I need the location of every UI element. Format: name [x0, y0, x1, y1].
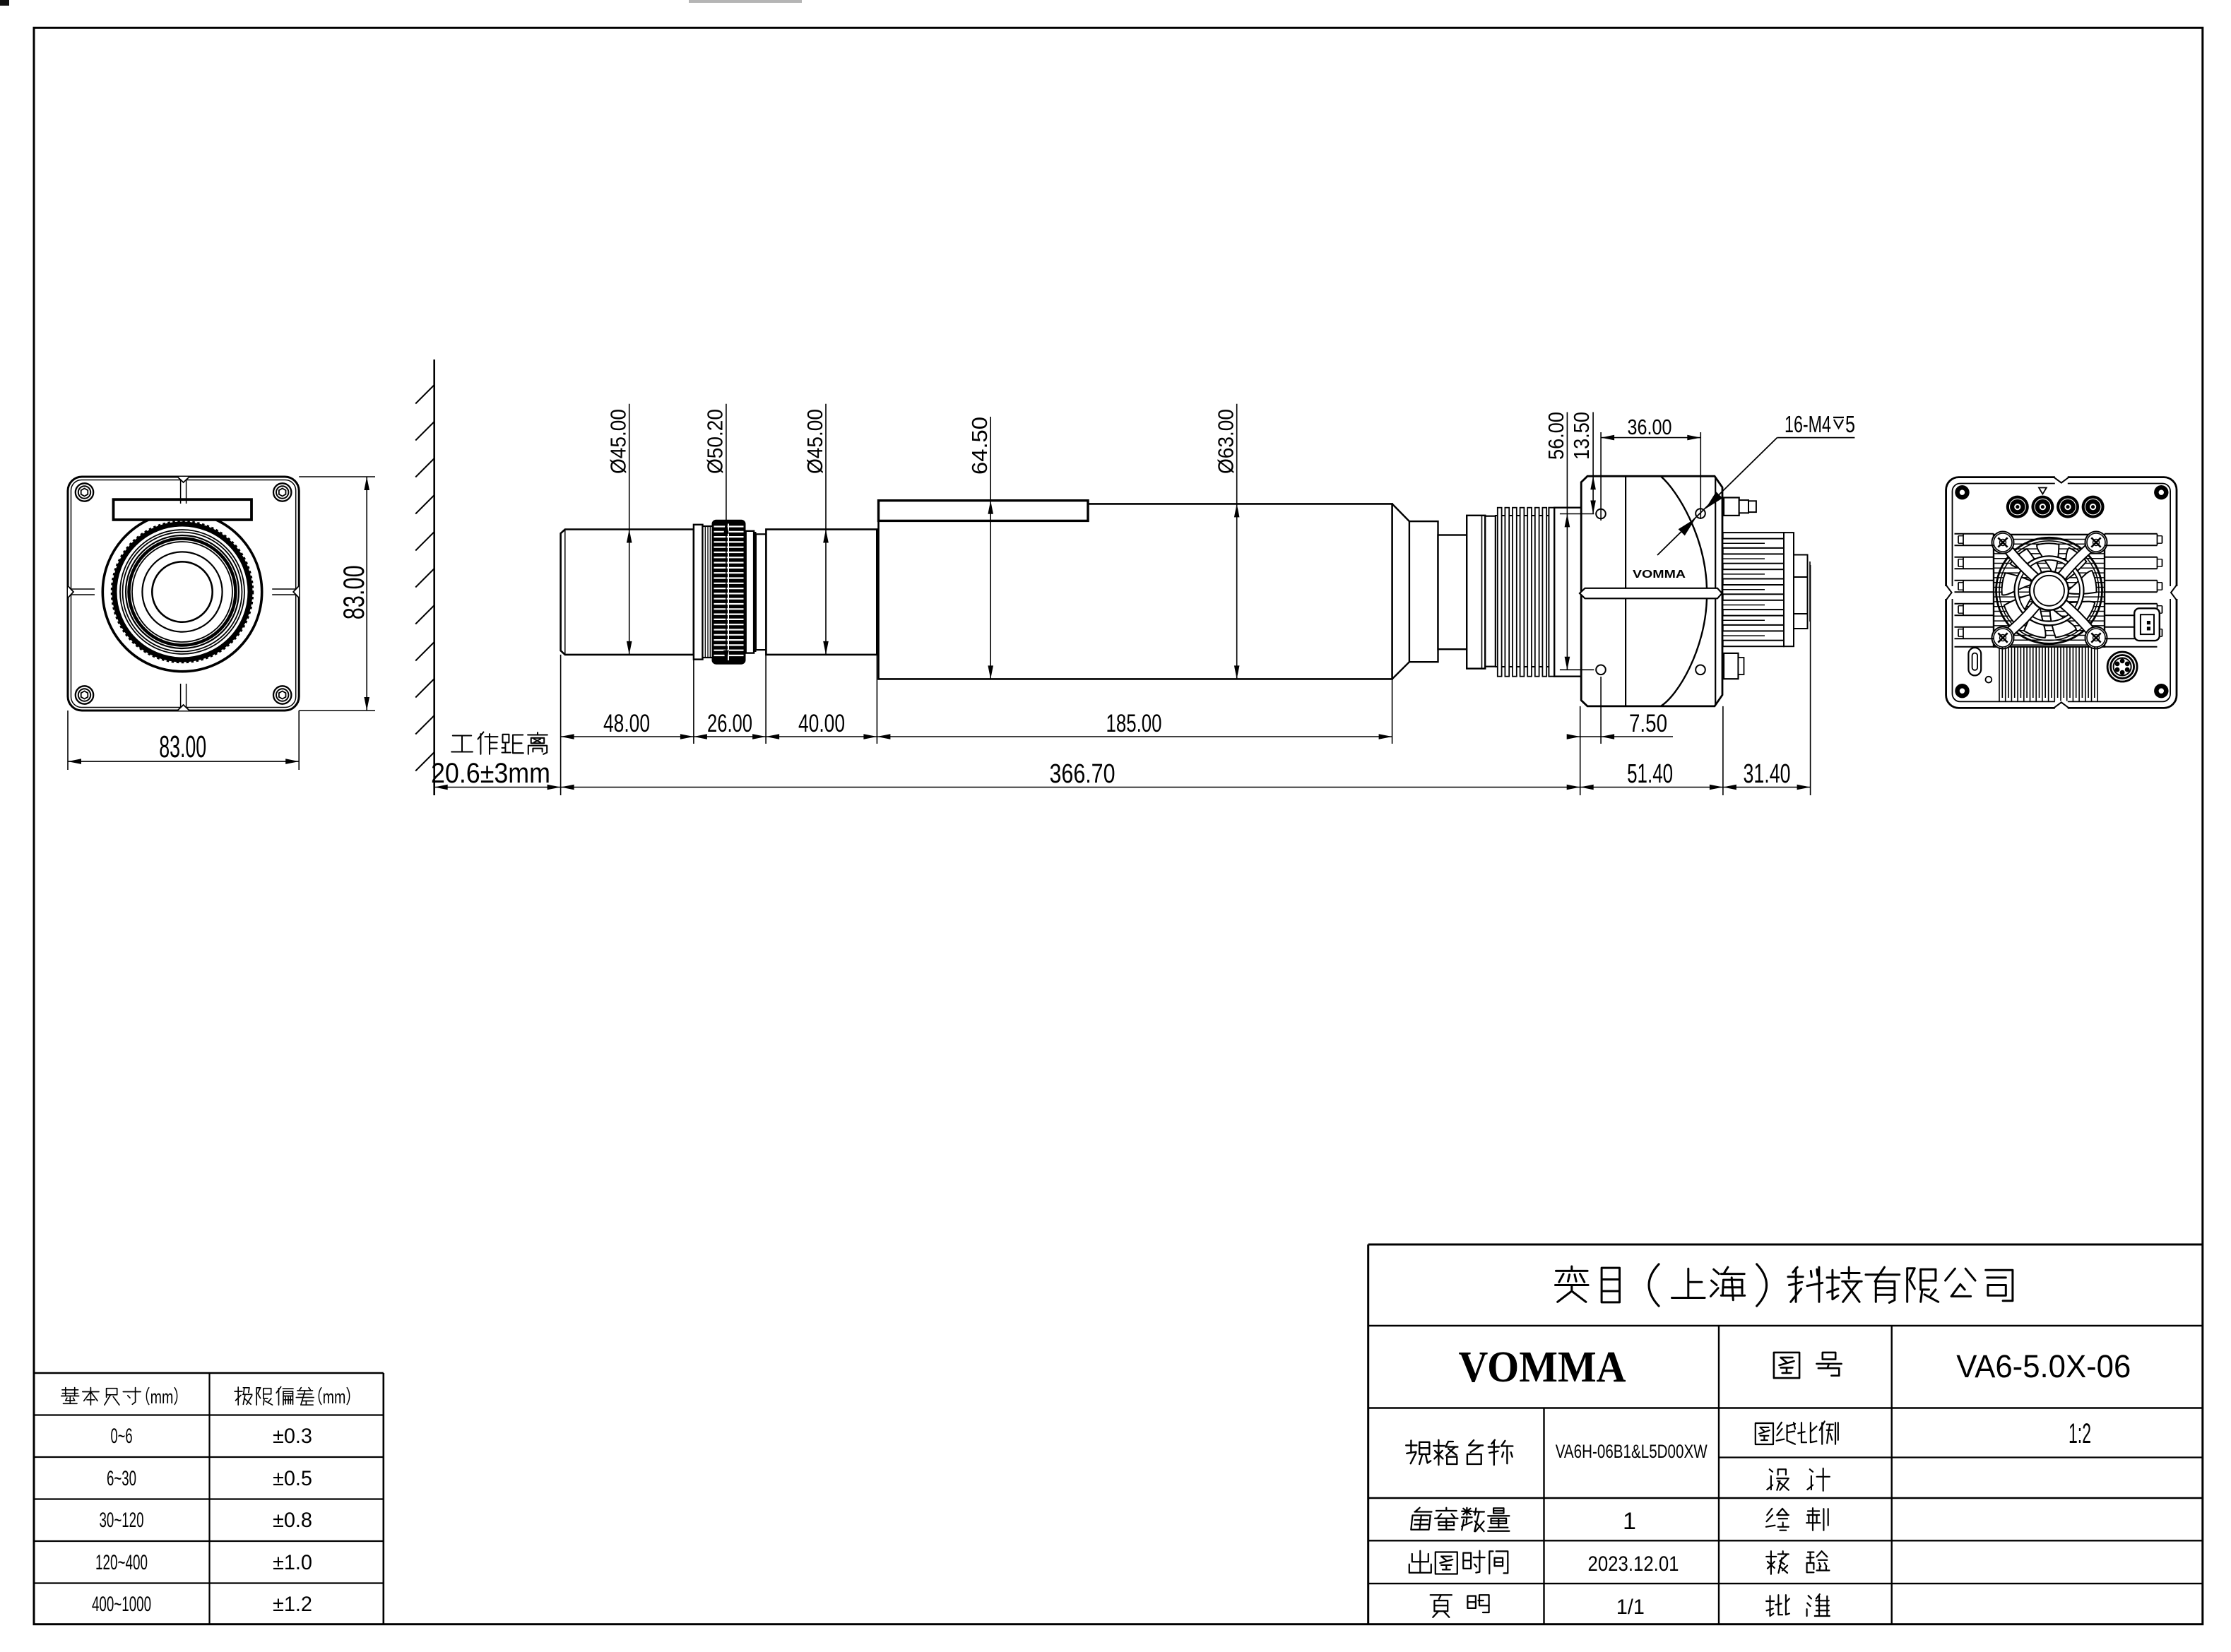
svg-text:48.00: 48.00 [603, 710, 650, 737]
svg-text:Ø45.00: Ø45.00 [606, 409, 631, 474]
svg-text:400~1000: 400~1000 [92, 1593, 151, 1616]
svg-text:VOMMA: VOMMA [1459, 1343, 1626, 1391]
svg-text:Ø50.20: Ø50.20 [703, 409, 728, 474]
svg-text:±0.8: ±0.8 [273, 1509, 312, 1532]
svg-text:20.6±3mm: 20.6±3mm [431, 758, 550, 789]
svg-text:31.40: 31.40 [1744, 759, 1791, 789]
svg-text:±1.2: ±1.2 [273, 1593, 312, 1616]
svg-text:Ø45.00: Ø45.00 [803, 409, 827, 474]
svg-text:13.50: 13.50 [1569, 412, 1594, 460]
svg-text:36.00: 36.00 [1628, 415, 1672, 439]
svg-text:（mm）: （mm） [309, 1386, 360, 1408]
svg-text:40.00: 40.00 [798, 710, 845, 737]
svg-text:1:2: 1:2 [2069, 1418, 2091, 1449]
svg-text:±0.3: ±0.3 [273, 1425, 312, 1448]
svg-text:±0.5: ±0.5 [273, 1467, 312, 1490]
svg-text:51.40: 51.40 [1627, 759, 1673, 789]
svg-text:VA6H-06B1&L5D00XW: VA6H-06B1&L5D00XW [1556, 1441, 1708, 1462]
svg-text:6~30: 6~30 [107, 1467, 136, 1490]
svg-text:56.00: 56.00 [1544, 412, 1568, 460]
svg-text:VOMMA: VOMMA [1633, 569, 1686, 581]
svg-text:1/1: 1/1 [1616, 1595, 1645, 1619]
svg-text:83.00: 83.00 [159, 730, 206, 764]
svg-text:64.50: 64.50 [967, 417, 992, 475]
svg-text:（mm）: （mm） [136, 1386, 187, 1408]
svg-text:2023.12.01: 2023.12.01 [1588, 1552, 1679, 1576]
svg-text:83.00: 83.00 [337, 565, 370, 619]
svg-text:120~400: 120~400 [95, 1551, 148, 1574]
svg-text:185.00: 185.00 [1106, 710, 1162, 737]
svg-text:26.00: 26.00 [707, 710, 752, 737]
svg-text:366.70: 366.70 [1050, 759, 1115, 789]
svg-text:±1.0: ±1.0 [273, 1551, 312, 1574]
svg-text:16-M4: 16-M4 [1785, 411, 1831, 437]
svg-text:5: 5 [1845, 411, 1855, 437]
svg-text:1: 1 [1623, 1508, 1636, 1535]
svg-text:VA6-5.0X-06: VA6-5.0X-06 [1956, 1348, 2131, 1384]
svg-text:Ø63.00: Ø63.00 [1214, 409, 1238, 474]
svg-text:30~120: 30~120 [100, 1509, 144, 1532]
svg-text:7.50: 7.50 [1629, 710, 1667, 737]
svg-text:0~6: 0~6 [111, 1425, 133, 1448]
